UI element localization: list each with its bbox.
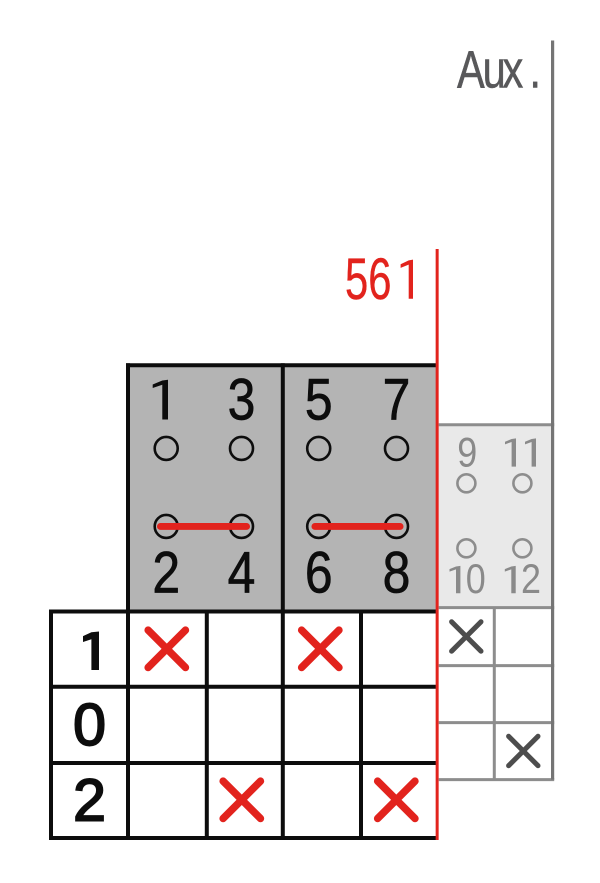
svg-text:56: 56	[345, 246, 391, 311]
svg-text:2: 2	[73, 768, 106, 834]
svg-text:7: 7	[383, 368, 411, 432]
svg-text:9: 9	[457, 430, 477, 476]
svg-text:8: 8	[383, 541, 411, 605]
svg-text:Aux.: Aux.	[457, 41, 541, 100]
svg-text:0: 0	[466, 557, 486, 603]
svg-text:2: 2	[152, 541, 180, 605]
svg-text:3: 3	[228, 368, 256, 432]
svg-text:5: 5	[305, 368, 333, 432]
svg-text:6: 6	[305, 541, 333, 605]
svg-text:0: 0	[73, 692, 106, 758]
svg-text:4: 4	[228, 541, 256, 605]
svg-text:2: 2	[521, 557, 541, 603]
